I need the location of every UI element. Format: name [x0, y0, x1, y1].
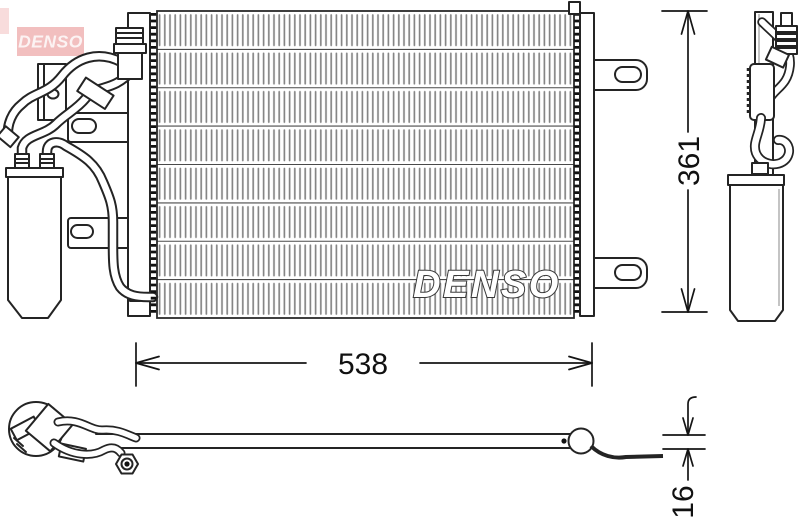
end-bracket — [591, 446, 663, 458]
front-view: DENSO — [0, 2, 647, 318]
mounting-bracket-top-right — [594, 60, 647, 90]
receiver-drier — [6, 154, 63, 318]
end-fitting — [569, 429, 594, 454]
depth-value: 16 — [667, 485, 700, 518]
side-receiver-drier — [728, 163, 784, 321]
drier-cap — [6, 168, 63, 177]
width-value: 538 — [338, 348, 388, 381]
mounting-bracket-bottom-right — [594, 258, 647, 288]
rivet-dot — [561, 438, 566, 443]
right-tank — [580, 13, 594, 316]
logo-text: DENSO — [18, 32, 83, 52]
pipe-open-end — [0, 126, 19, 147]
core-top-edge-bar — [96, 434, 578, 448]
condenser-core: DENSO — [154, 11, 578, 318]
drawing-canvas: DENSO — [0, 0, 800, 527]
bottom-view — [9, 402, 663, 474]
pipe-fitting — [114, 28, 146, 79]
logo-edge-sliver — [0, 8, 9, 34]
hex-nut — [116, 455, 138, 474]
denso-logo: DENSO — [0, 8, 84, 56]
condenser-technical-drawing: DENSO — [0, 0, 800, 527]
drier-body — [8, 177, 61, 318]
dimension-height: 361 — [662, 11, 707, 312]
height-value: 361 — [673, 136, 706, 186]
bottom-hose-assembly — [9, 402, 138, 474]
side-view — [728, 12, 797, 321]
top-stub-pipe — [569, 2, 580, 14]
drier-nipples — [15, 154, 54, 169]
dimension-width: 538 — [136, 343, 592, 386]
dimension-depth: 16 — [663, 397, 705, 519]
core-watermark: DENSO — [413, 264, 561, 306]
